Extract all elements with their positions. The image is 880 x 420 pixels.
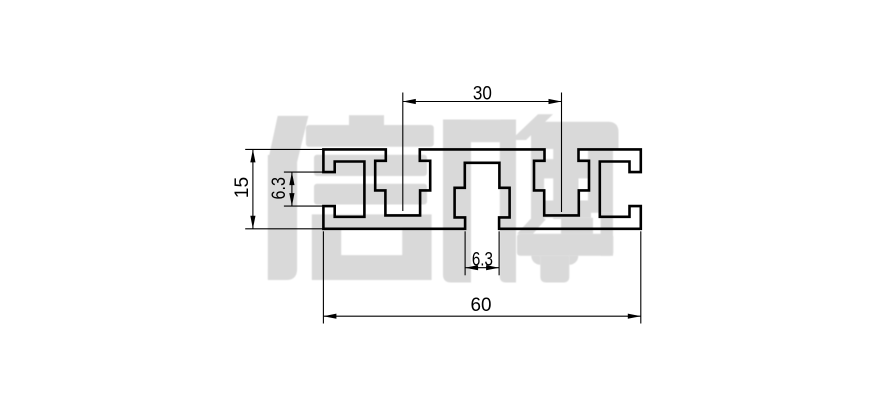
svg-text:30: 30	[473, 82, 492, 104]
svg-text:15: 15	[231, 177, 253, 199]
svg-text:60: 60	[471, 294, 492, 316]
svg-text:6.3: 6.3	[268, 177, 290, 199]
svg-text:6.3: 6.3	[472, 249, 493, 271]
